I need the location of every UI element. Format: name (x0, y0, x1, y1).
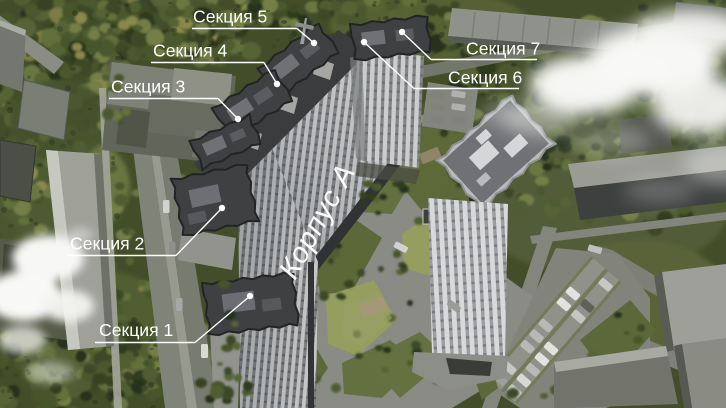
svg-text:Секция 6: Секция 6 (448, 68, 523, 88)
svg-text:Секция 2: Секция 2 (70, 234, 144, 254)
svg-text:Секция 4: Секция 4 (153, 41, 228, 61)
svg-text:Секция 3: Секция 3 (111, 77, 186, 97)
svg-text:Секция 5: Секция 5 (193, 7, 268, 27)
svg-text:Секция 7: Секция 7 (466, 39, 540, 59)
svg-text:Секция 1: Секция 1 (99, 320, 173, 340)
